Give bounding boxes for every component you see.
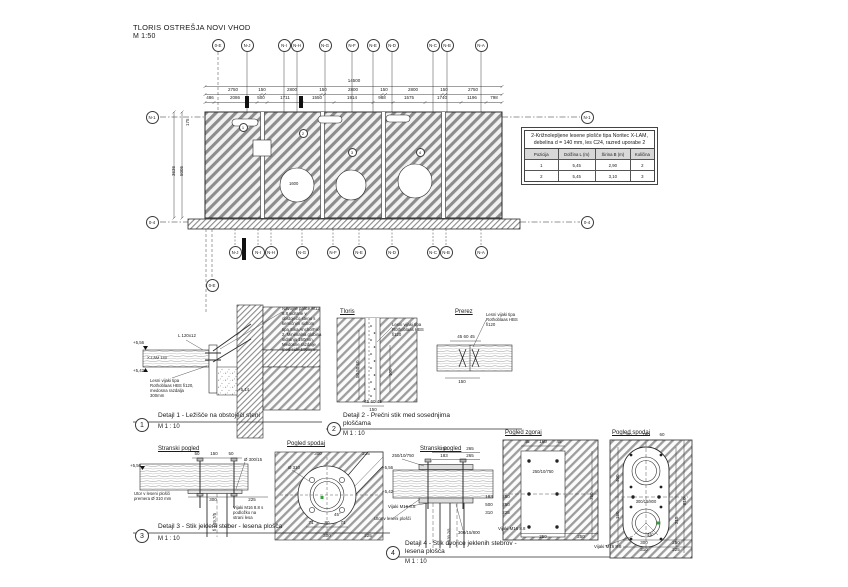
dim: 300 — [640, 541, 648, 546]
view-heading: Prerez — [455, 309, 473, 315]
dim: 2750 — [228, 88, 238, 93]
dim: 225 — [362, 452, 370, 457]
cad-grip — [657, 522, 660, 525]
elevation-label: +5,56 — [130, 464, 141, 469]
dim: 265 — [466, 447, 474, 452]
view-heading: Pogled zgoraj — [505, 430, 542, 436]
detail4-number: 4 — [386, 546, 400, 560]
dim: 45 — [556, 440, 561, 445]
dim: 310 — [640, 548, 648, 553]
table-header: Širina B (m) — [596, 149, 631, 160]
screw-annotation: Lesni vijaki tipa Rothoblaas HBS fi120 — [486, 312, 522, 327]
grid-marker: N-A — [475, 39, 488, 52]
dim-vertical: 750 — [590, 492, 595, 500]
steel-shoe — [209, 345, 217, 393]
plate-label: 300/15/800 — [636, 500, 657, 504]
concrete-infill — [217, 367, 237, 395]
dim: 45 60 45 — [364, 400, 382, 405]
hole-diameter-label: Ø 310 — [288, 466, 300, 471]
grid-marker: N-J — [229, 246, 242, 259]
dim: 1196 — [467, 96, 477, 101]
detail2-caption: Detajl 2 - Prečni stik med sosednjima — [343, 413, 450, 420]
detail1-caption: Detajl 1 - Ležišče na obstoječi steni — [158, 413, 260, 420]
dim: 1914 — [347, 96, 357, 101]
panel-type-label: X-LAM 140 — [147, 356, 167, 360]
dim: 45 60 45 — [457, 335, 475, 340]
grid-marker: N-H — [291, 39, 304, 52]
dim: 80 — [324, 521, 329, 526]
table-row: 1 5,45 2,90 2 — [525, 160, 654, 171]
dim: 300 — [323, 534, 331, 539]
dim: 2800 — [287, 88, 297, 93]
grid-marker: N-C — [427, 246, 440, 259]
grid-marker: N-E — [353, 246, 366, 259]
table-header: Dolžina L (m) — [559, 149, 596, 160]
dim: 160 — [539, 440, 547, 445]
grid-marker: 0-E — [206, 279, 219, 292]
bolt-annotation: Vijaki M16 8.8 — [388, 505, 416, 510]
dim: 486 — [206, 96, 214, 101]
grid-marker: N-I — [278, 39, 291, 52]
plate-label: 300/15/800 — [458, 531, 480, 536]
grid-marker: 0-E — [212, 39, 225, 52]
table-row: 2 5,45 3,10 3 — [525, 171, 654, 181]
detail3-caption: Detajl 3 - Stik jekleni steber - lesena … — [158, 524, 282, 531]
grid-marker: N-G — [296, 246, 309, 259]
grid-marker: N-D — [386, 39, 399, 52]
elevation-label: +5,42 — [382, 490, 393, 495]
dim: 150 — [458, 380, 466, 385]
view-heading: Pogled spodaj — [287, 441, 325, 447]
plate-label: 250/10/750 — [533, 470, 554, 474]
groove-annotation: Utor v leseni plošči — [374, 517, 411, 522]
dim: 183 — [440, 454, 448, 459]
grid-marker: N-B — [440, 246, 453, 259]
steel-angle-label: L 120x12 — [178, 334, 196, 339]
dim: 798 — [490, 96, 498, 101]
table-header: Pozicija — [525, 149, 559, 160]
dim: 150 — [380, 88, 388, 93]
dim: 225 — [248, 498, 256, 503]
plate-label: 250/10/750 — [392, 454, 414, 459]
dim: 60 — [659, 433, 664, 438]
detail2-number: 2 — [327, 422, 341, 436]
dim: 2800 — [348, 88, 358, 93]
grid-marker: N-J — [241, 39, 254, 52]
dim-total: 14500 — [348, 79, 361, 84]
grid-marker: 0-4 — [581, 216, 594, 229]
detail-callout: 2 — [299, 129, 308, 138]
dim: 250 — [502, 495, 510, 500]
elevation-label: +5,56 — [382, 466, 393, 471]
dim: 150 — [440, 88, 448, 93]
dim: 988 — [378, 96, 386, 101]
dim: 310 — [485, 511, 493, 516]
table-header: Količina — [631, 149, 654, 160]
clt-panel-field — [205, 112, 502, 218]
screw-annotation: Lesni vijaki tipa Rothoblaas HBS fi120, … — [150, 378, 194, 399]
detail1-scale: M 1 : 10 — [158, 424, 180, 430]
grid-marker: N-F — [327, 246, 340, 259]
dim: 150 — [210, 452, 218, 457]
dim: 50 — [228, 452, 233, 457]
grid-marker: N-B — [441, 39, 454, 52]
roof-object — [386, 115, 410, 122]
dim: 250 — [502, 503, 510, 508]
detail1-number: 1 — [135, 418, 149, 432]
dim: 500 — [257, 96, 265, 101]
dim-vertical: 175 — [186, 118, 191, 126]
detail-callout: 1 — [239, 123, 248, 132]
plate-label: Ø 300/15 — [244, 458, 262, 463]
angle-label: 45° — [334, 513, 341, 518]
dim: 2086 — [230, 96, 240, 101]
clt-beam-side4 — [393, 470, 493, 498]
dim: 500 — [485, 503, 493, 508]
existing-wall — [188, 219, 520, 229]
elevation-label: +5,42 — [133, 369, 144, 374]
grid-marker: N-H — [265, 246, 278, 259]
detail4-caption: Detajl 4 - Stik dvojice jeklenih stebrov… — [405, 541, 517, 548]
dim: 1575 — [404, 96, 414, 101]
dim: 1550 — [312, 96, 322, 101]
dim: 265 — [466, 454, 474, 459]
clt-beam-side — [140, 464, 248, 490]
anchor-annotation: Navojne palice M12 8.8 sidrane v obstoje… — [282, 306, 322, 352]
dim: 71 — [340, 521, 345, 526]
grid-marker: N-F — [346, 39, 359, 52]
plan-view — [160, 52, 580, 312]
detail-callout: 3 — [348, 148, 357, 157]
dim: 71 — [308, 521, 313, 526]
drawing-linework — [0, 0, 848, 587]
drawing-sheet: TLORIS OSTREŠJA NOVI VHOD M 1:50 0-E N-J… — [0, 0, 848, 587]
dim: 225 — [502, 511, 510, 516]
dim: 60 — [626, 433, 631, 438]
grid-marker: N-1 — [581, 111, 594, 124]
table-title: 2-Križnolepljene lesene plošče tipa Nori… — [525, 131, 654, 149]
top-plate — [419, 465, 473, 470]
detail-callout: 4 — [416, 148, 425, 157]
dim: 225 — [672, 548, 680, 553]
roof-object — [318, 116, 342, 123]
dim-vertical: 100 — [389, 368, 394, 376]
dim: 250 — [577, 535, 585, 540]
grid-marker: N-D — [386, 246, 399, 259]
bolt-annotation: Vijaki M16 8.8 s podložko na strani lesa — [233, 505, 265, 520]
grid-stems-bottom — [206, 229, 481, 312]
opening-circle-2 — [336, 170, 366, 200]
drawing-scale: M 1:50 — [133, 33, 156, 40]
dim: 300 — [209, 498, 217, 503]
dim: 150 — [319, 88, 327, 93]
dim: 180 — [642, 433, 650, 438]
bottom-plate — [419, 498, 473, 503]
grid-marker: N-A — [475, 246, 488, 259]
elevation-label: +5,56 — [133, 341, 144, 346]
dim: 1740 — [437, 96, 447, 101]
bolt-annotation: Vijaki M16 8.8 — [594, 545, 622, 550]
dim: 250 — [440, 447, 448, 452]
detail2-scale: M 1 : 10 — [343, 431, 365, 437]
detail4-scale: M 1 : 10 — [405, 559, 427, 565]
panel-schedule-table: 2-Križnolepljene lesene plošče tipa Nori… — [521, 127, 658, 185]
dim-vertical: 3636 — [172, 166, 177, 176]
dim: 150 — [258, 88, 266, 93]
grid-marker: N-C — [427, 39, 440, 52]
opening-circle-3 — [398, 164, 432, 198]
dim: 2750 — [468, 88, 478, 93]
dim-vertical: 810 — [683, 497, 688, 505]
dim: 250 — [672, 541, 680, 546]
grid-marker: N-1 — [146, 111, 159, 124]
roof-object — [253, 140, 271, 156]
grid-marker: 0-4 — [146, 216, 159, 229]
detail2-caption: ploščama — [343, 421, 371, 428]
dim: 1711 — [280, 96, 290, 101]
grid-marker: N-E — [367, 39, 380, 52]
dim-vertical: 5005 — [180, 166, 185, 176]
detail4-caption: lesena plošča — [405, 549, 445, 556]
dim: 250 — [539, 535, 547, 540]
dim: 300 — [314, 452, 322, 457]
opening-diameter-label: 1600 — [289, 182, 298, 186]
dim: 2800 — [408, 88, 418, 93]
view-heading: Tloris — [340, 309, 355, 315]
dim: 183 — [485, 495, 493, 500]
detail3-number: 3 — [135, 529, 149, 543]
bolt-annotation: Vijaki M16 8.8 — [498, 527, 526, 532]
slab — [263, 350, 320, 367]
view-heading: Stranski pogled — [158, 446, 199, 452]
dim-vertical: 50 50 50 — [356, 360, 361, 378]
wall-block-lower — [263, 367, 320, 410]
panel-section — [437, 345, 512, 371]
dim: 50 — [194, 452, 199, 457]
dim: 225 — [364, 534, 372, 539]
grid-marker: N-I — [252, 246, 265, 259]
grid-marker: N-G — [319, 39, 332, 52]
elevation-label: +5,14 — [238, 388, 249, 393]
cad-grip — [321, 496, 324, 499]
detail3-scale: M 1 : 10 — [158, 536, 180, 542]
angle-label: 45° — [647, 533, 654, 538]
dim: 45 — [524, 440, 529, 445]
drawing-title: TLORIS OSTREŠJA NOVI VHOD — [133, 24, 251, 32]
dim-vertical: 400 — [616, 474, 621, 482]
dim-vertical: 215 — [675, 516, 680, 524]
screw-annotation: Lesni vijaki tipa Rothoblaas HBS fi120 — [392, 322, 428, 337]
dim-vertical: 150 — [616, 511, 621, 519]
groove-annotation: Utor v leseni plošči premera Ø 310 mm — [134, 491, 174, 501]
